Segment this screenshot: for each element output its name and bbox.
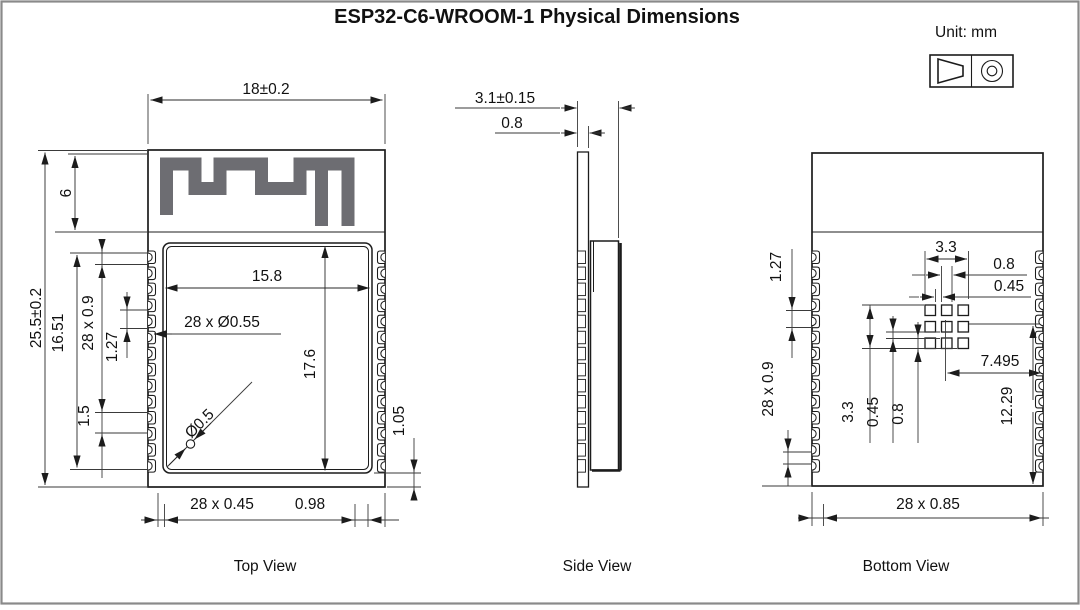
castellation-hole bbox=[812, 269, 816, 277]
thermal-pad bbox=[958, 305, 969, 316]
castellation-hole bbox=[1039, 285, 1043, 293]
dim-shield-width: 15.8 bbox=[252, 268, 282, 285]
castellation-hole bbox=[148, 365, 152, 373]
castellation-hole bbox=[381, 365, 385, 373]
castellation-hole bbox=[148, 430, 152, 438]
castellation-hole bbox=[1039, 301, 1043, 309]
bottom-view-label: Bottom View bbox=[863, 558, 951, 575]
module-outline-bottom bbox=[812, 153, 1043, 486]
castellation-hole bbox=[812, 253, 816, 261]
castellation-hole bbox=[148, 253, 152, 261]
castellation-hole bbox=[812, 285, 816, 293]
side-pad bbox=[578, 267, 586, 280]
thermal-pad bbox=[925, 305, 936, 316]
dim-edge-pad-length: 28 x 0.9 bbox=[760, 361, 777, 416]
side-pad bbox=[578, 395, 586, 408]
side-pad bbox=[578, 428, 586, 441]
datasheet-figure: ESP32-C6-WROOM-1 Physical Dimensions Uni… bbox=[0, 0, 1080, 605]
castellation-hole bbox=[381, 349, 385, 357]
castellation-hole bbox=[148, 333, 152, 341]
castellation-hole bbox=[381, 462, 385, 470]
castellation-hole bbox=[381, 317, 385, 325]
castellation-hole bbox=[812, 333, 816, 341]
castellation-hole bbox=[148, 446, 152, 454]
castellation-hole bbox=[1039, 430, 1043, 438]
castellation-hole bbox=[148, 462, 152, 470]
side-pad bbox=[578, 251, 586, 264]
dim-module-width: 18±0.2 bbox=[242, 81, 289, 98]
castellation-hole bbox=[812, 446, 816, 454]
dim-grid-to-bottom-edge: 12.29 bbox=[999, 387, 1016, 426]
castellation-hole bbox=[381, 301, 385, 309]
dim-pcb-thickness: 0.8 bbox=[501, 115, 523, 132]
castellation-hole bbox=[1039, 414, 1043, 422]
dim-antenna-height: 6 bbox=[58, 189, 75, 198]
top-view-label: Top View bbox=[234, 558, 297, 575]
castellation-hole bbox=[812, 398, 816, 406]
dimension-drawing: ESP32-C6-WROOM-1 Physical Dimensions Uni… bbox=[0, 0, 1080, 605]
castellation-hole bbox=[812, 430, 816, 438]
castellation-hole bbox=[1039, 365, 1043, 373]
side-pad bbox=[578, 299, 586, 312]
castellation-hole bbox=[148, 349, 152, 357]
castellation-hole bbox=[812, 317, 816, 325]
side-pad bbox=[578, 363, 586, 376]
dim-total-thickness: 3.1±0.15 bbox=[475, 90, 535, 107]
figure-title: ESP32-C6-WROOM-1 Physical Dimensions bbox=[334, 6, 740, 28]
castellation-hole bbox=[1039, 398, 1043, 406]
dim-pad-offset: 1.5 bbox=[76, 405, 93, 427]
dim-pad-row-gap: 0.45 bbox=[865, 397, 882, 427]
thermal-pad bbox=[925, 338, 936, 349]
thermal-pad bbox=[958, 322, 969, 333]
dim-pad-width: 28 x 0.45 bbox=[190, 496, 254, 513]
side-pad bbox=[578, 315, 586, 328]
castellation-hole bbox=[148, 269, 152, 277]
side-view-label: Side View bbox=[563, 558, 632, 575]
dim-thermal-grid-height: 3.3 bbox=[840, 401, 857, 423]
dim-pad-length: 28 x 0.9 bbox=[80, 295, 97, 350]
dim-grid-center-to-edge: 7.495 bbox=[981, 353, 1020, 370]
unit-label: Unit: mm bbox=[935, 24, 997, 41]
projection-symbol bbox=[930, 55, 1013, 87]
castellation-hole bbox=[148, 398, 152, 406]
castellation-hole bbox=[148, 317, 152, 325]
dim-bottom-pad-width: 28 x 0.85 bbox=[896, 496, 960, 513]
castellation-hole bbox=[381, 333, 385, 341]
dim-castellation-holes: 28 x Ø0.55 bbox=[184, 314, 260, 331]
castellation-hole bbox=[381, 285, 385, 293]
thermal-pad bbox=[958, 338, 969, 349]
castellation-hole bbox=[381, 398, 385, 406]
castellation-hole bbox=[812, 382, 816, 390]
dim-pad-col-width: 0.8 bbox=[993, 256, 1015, 273]
thermal-pad bbox=[942, 305, 953, 316]
castellation-hole bbox=[812, 414, 816, 422]
thermal-pad bbox=[942, 338, 953, 349]
castellation-hole bbox=[1039, 382, 1043, 390]
dim-shield-bottom-gap: 1.05 bbox=[391, 406, 408, 436]
castellation-hole bbox=[1039, 446, 1043, 454]
castellation-hole bbox=[148, 285, 152, 293]
side-pad bbox=[578, 331, 586, 344]
side-pad bbox=[578, 460, 586, 473]
dim-edge-pad-pitch: 1.27 bbox=[768, 252, 785, 282]
castellation-hole bbox=[381, 382, 385, 390]
castellation-hole bbox=[812, 365, 816, 373]
dim-module-height: 25.5±0.2 bbox=[28, 288, 45, 348]
thermal-pad-grid bbox=[925, 305, 969, 349]
castellation-hole bbox=[1039, 253, 1043, 261]
dim-pad-row-height: 0.8 bbox=[890, 403, 907, 425]
thermal-pad bbox=[942, 322, 953, 333]
castellation-hole bbox=[381, 253, 385, 261]
castellation-hole bbox=[812, 349, 816, 357]
castellation-hole bbox=[1039, 462, 1043, 470]
dim-pad-row-span: 16.51 bbox=[50, 314, 67, 353]
thermal-pad bbox=[925, 322, 936, 333]
castellation-hole bbox=[148, 301, 152, 309]
castellation-hole bbox=[381, 446, 385, 454]
dim-corner-gap: 0.98 bbox=[295, 496, 325, 513]
dim-shield-height: 17.6 bbox=[302, 349, 319, 379]
castellation-hole bbox=[381, 430, 385, 438]
castellation-hole bbox=[812, 301, 816, 309]
side-pad bbox=[578, 412, 586, 425]
dim-pad-col-gap: 0.45 bbox=[994, 278, 1024, 295]
dim-thermal-grid-width: 3.3 bbox=[935, 239, 957, 256]
castellation-hole bbox=[812, 462, 816, 470]
side-pad bbox=[578, 283, 586, 296]
side-pad bbox=[578, 347, 586, 360]
castellation-hole bbox=[381, 269, 385, 277]
side-pad bbox=[578, 379, 586, 392]
castellation-hole bbox=[1039, 333, 1043, 341]
castellation-hole bbox=[1039, 349, 1043, 357]
dim-pad-pitch: 1.27 bbox=[104, 332, 121, 362]
side-pad bbox=[578, 444, 586, 457]
castellation-hole bbox=[148, 382, 152, 390]
castellation-hole bbox=[1039, 269, 1043, 277]
castellation-hole bbox=[381, 414, 385, 422]
castellation-hole bbox=[148, 414, 152, 422]
